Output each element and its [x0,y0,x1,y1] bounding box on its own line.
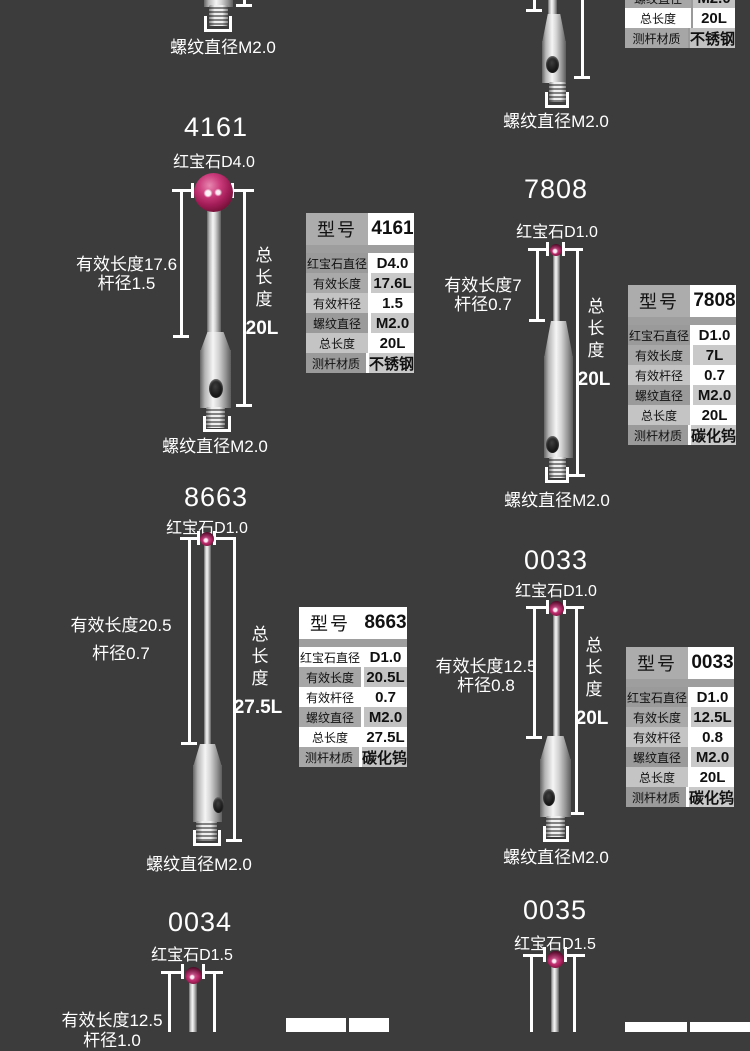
total-length-label: 总长度 27.5L [232,625,284,719]
spec-value: D1.0 [688,687,734,707]
spec-label: 螺纹直径 [628,385,690,405]
table-band [306,245,414,253]
stylus-shaft [551,966,559,1032]
spec-value: D1.0 [690,325,736,345]
thread-diameter-label: 螺纹直径M2.0 [140,432,290,457]
total-length-label: 总长度 20L [240,246,284,340]
thread-bracket [545,467,569,483]
dimension-tick [526,9,542,12]
spec-value: 碳化钨 [688,425,736,445]
spec-value: 27.5L [361,727,407,747]
dimension-tick [236,4,252,7]
product-title: 0034 [155,907,245,938]
spec-header-value: 0033 [688,647,734,679]
table-row: 红宝石直径D1.0 [626,687,734,707]
spec-table-partial [286,1018,346,1032]
spec-label: 有效杆径 [306,293,368,313]
shaft-diameter-label: 杆径0.7 [413,290,553,315]
table-row: 有效杆径0.7 [628,365,736,385]
thread-bracket [545,92,569,108]
table-row: 螺纹直径M2.0 [626,747,734,767]
table-row: 总长度20L [306,333,414,353]
table-row: 有效长度17.6L [306,273,414,293]
spec-value: 碳化钨 [359,747,407,767]
spec-table: 型号 8663 红宝石直径D1.0 有效长度20.5L 有效杆径0.7 螺纹直径… [299,607,407,767]
stylus-shaft [207,209,221,334]
thread-bracket [203,416,231,432]
product-title: 0035 [510,895,600,926]
spec-label: 有效杆径 [299,687,361,707]
spec-label: 红宝石直径 [299,647,361,667]
spec-label: 有效长度 [299,667,361,687]
spec-label: 测杆材质 [626,787,686,807]
product-title: 4161 [171,112,261,143]
side-hole [546,436,559,453]
stylus-taper [540,736,571,761]
spec-value: 0.8 [688,727,734,747]
table-band [626,679,734,687]
dimension-tick [226,839,242,842]
table-header: 型号 0033 [626,647,734,679]
dimension-tick [574,76,590,79]
dimension-tick [215,537,234,540]
spec-label: 螺纹直径 [626,747,688,767]
ruby-diameter-label: 红宝石D1.5 [127,941,257,965]
spec-label: 总长度 [299,727,361,747]
stylus-shaft [189,982,197,1032]
spec-value: M2.0 [361,707,407,727]
spec-value: 碳化钨 [686,787,734,807]
thread-bracket [543,826,569,842]
table-row: 螺纹直径M2.0 [306,313,414,333]
spec-label: 螺纹直径 [306,313,368,333]
spec-label: 总长度 [628,405,690,425]
shaft-diameter-label: 杆径1.5 [54,269,199,294]
ruby-ball [550,244,562,256]
spec-table-partial [690,1022,750,1032]
spec-table: 型号 7808 红宝石直径D1.0 有效长度7L 有效杆径0.7 螺纹直径M2.… [628,285,736,445]
thread-diameter-label: 螺纹直径M2.0 [482,486,632,511]
spec-value: 不锈钢 [688,28,735,48]
spec-value: 20L [691,8,735,28]
spec-value: D1.0 [361,647,407,667]
product-title: 8663 [171,482,261,513]
dimension-tick [161,971,181,974]
thread-diameter-label: 螺纹直径M2.0 [481,843,631,868]
thread-diameter-label: 螺纹直径M2.0 [481,107,631,132]
side-hole [209,379,223,398]
spec-label: 有效长度 [628,345,690,365]
product-title: 0033 [511,545,601,576]
spec-table: 型号 0033 红宝石直径D1.0 有效长度12.5L 有效杆径0.8 螺纹直径… [626,647,734,807]
stylus-taper [193,744,222,767]
table-row: 有效杆径1.5 [306,293,414,313]
table-row: 螺纹直径 M2.0 [625,0,735,8]
spec-header-label: 型号 [299,607,361,639]
spec-table-partial [349,1018,389,1032]
thread-bracket [193,830,221,846]
stylus-shaft [548,0,557,16]
spec-value: 0.7 [690,365,736,385]
spec-value: M2.0 [690,385,736,405]
spec-label: 总长度 [306,333,368,353]
spec-value: 20L [688,767,734,787]
spec-label: 有效长度 [306,273,368,293]
total-length-text: 总长度 [584,636,601,702]
spec-value: 7L [690,345,736,365]
spec-table: 型号 4161 红宝石直径D4.0 有效长度17.6L 有效杆径1.5 螺纹直径… [306,213,414,373]
stylus-taper [544,321,573,358]
dimension-line-effective-length [530,954,533,1032]
spec-label: 有效杆径 [628,365,690,385]
ruby-ball [185,967,202,984]
dimension-tick [236,404,252,407]
total-length-value: 27.5L [234,697,283,719]
table-row: 有效杆径0.7 [299,687,407,707]
spec-table-partial: 螺纹直径 M2.0 总长度 20L 测杆材质 不锈钢 [625,0,735,48]
stylus-taper [200,332,231,352]
table-header: 型号 7808 [628,285,736,317]
spec-value: 1.5 [368,293,414,313]
side-hole [546,56,559,73]
ruby-ball [200,532,214,546]
total-length-text: 总长度 [250,625,267,691]
spec-value: 17.6L [368,273,414,293]
spec-value: D4.0 [368,253,414,273]
stylus-body [193,765,222,822]
ruby-diameter-label: 红宝石D1.0 [491,577,621,601]
spec-value: M2.0 [691,0,735,8]
spec-label: 有效杆径 [626,727,688,747]
table-row: 测杆材质 不锈钢 [625,28,735,48]
dimension-line-total-length [573,954,576,1032]
table-header: 型号 8663 [299,607,407,639]
dimension-tick [564,248,583,251]
table-row: 总长度20L [626,767,734,787]
product-title: 7808 [511,174,601,205]
table-row: 总长度20L [628,405,736,425]
table-row: 螺纹直径M2.0 [299,707,407,727]
spec-label: 总长度 [625,8,691,28]
table-row: 有效杆径0.8 [626,727,734,747]
effective-length-label: 有效长度20.5 [51,611,191,636]
spec-label: 测杆材质 [625,28,688,48]
stylus-shaft [553,254,560,323]
total-length-value: 20L [576,708,609,730]
spec-header-value: 7808 [690,285,736,317]
total-length-label: 总长度 20L [570,636,614,730]
table-row: 红宝石直径D4.0 [306,253,414,273]
ruby-ball [549,601,564,616]
dimension-line-total-length [213,971,216,1032]
spec-label: 有效长度 [626,707,688,727]
dimension-tick [523,954,543,957]
table-band [299,639,407,647]
dimension-tick [529,319,545,322]
spec-label: 螺纹直径 [299,707,361,727]
dimension-tick [181,742,197,745]
spec-table-partial [625,1022,687,1032]
thread-bracket [204,16,232,32]
spec-label: 红宝石直径 [628,325,690,345]
dimension-line [581,0,584,79]
table-row: 有效长度20.5L [299,667,407,687]
table-row: 有效长度12.5L [626,707,734,727]
table-row: 测杆材质不锈钢 [306,353,414,373]
table-row: 测杆材质碳化钨 [299,747,407,767]
dimension-tick [546,242,549,256]
shaft-diameter-label: 杆径0.8 [416,671,556,696]
spec-value: 0.7 [361,687,407,707]
spec-label: 总长度 [626,767,688,787]
shaft-diameter-label: 杆径0.7 [51,639,191,664]
ruby-ball [547,951,564,968]
spec-label: 螺纹直径 [625,0,691,8]
table-header: 型号 4161 [306,213,414,245]
spec-header-value: 8663 [361,607,407,639]
table-row: 红宝石直径D1.0 [299,647,407,667]
spec-header-value: 4161 [368,213,414,245]
dimension-tick [569,474,585,477]
thread-diameter-label: 螺纹直径M2.0 [148,33,298,58]
ruby-diameter-label: 红宝石D1.0 [492,218,622,242]
ruby-diameter-label: 红宝石D4.0 [149,148,279,172]
spec-label: 测杆材质 [306,353,366,373]
spec-value: 20L [368,333,414,353]
dimension-tick [526,736,542,739]
spec-value: 不锈钢 [366,353,414,373]
spec-value: M2.0 [368,313,414,333]
spec-label: 红宝石直径 [306,253,368,273]
table-row: 总长度 20L [625,8,735,28]
stylus-taper [542,14,566,43]
total-length-text: 总长度 [586,297,603,363]
spec-value: 20.5L [361,667,407,687]
spec-header-label: 型号 [306,213,368,245]
table-row: 测杆材质碳化钨 [626,787,734,807]
spec-label: 红宝石直径 [626,687,688,707]
table-band [628,317,736,325]
dimension-tick [526,606,546,609]
dimension-tick [173,335,189,338]
side-hole [213,797,224,813]
total-length-value: 20L [246,318,279,340]
table-row: 测杆材质碳化钨 [628,425,736,445]
thread-diameter-label: 螺纹直径M2.0 [124,850,274,875]
total-length-label: 总长度 20L [572,297,616,391]
ruby-ball [194,173,233,212]
table-row: 螺纹直径M2.0 [628,385,736,405]
table-row: 红宝石直径D1.0 [628,325,736,345]
spec-value: 12.5L [688,707,734,727]
spec-label: 测杆材质 [628,425,688,445]
shaft-diameter-label: 杆径1.0 [42,1026,182,1051]
spec-header-label: 型号 [626,647,688,679]
total-length-text: 总长度 [254,246,271,312]
table-row: 有效长度7L [628,345,736,365]
table-row: 总长度27.5L [299,727,407,747]
spec-value: M2.0 [688,747,734,767]
side-hole [543,789,555,806]
dimension-tick [543,947,546,962]
dimension-tick [181,964,184,979]
spec-label: 测杆材质 [299,747,359,767]
total-length-value: 20L [578,369,611,391]
stylus-body [540,759,571,817]
spec-header-label: 型号 [628,285,690,317]
stylus-shaft [204,544,211,746]
spec-value: 20L [690,405,736,425]
